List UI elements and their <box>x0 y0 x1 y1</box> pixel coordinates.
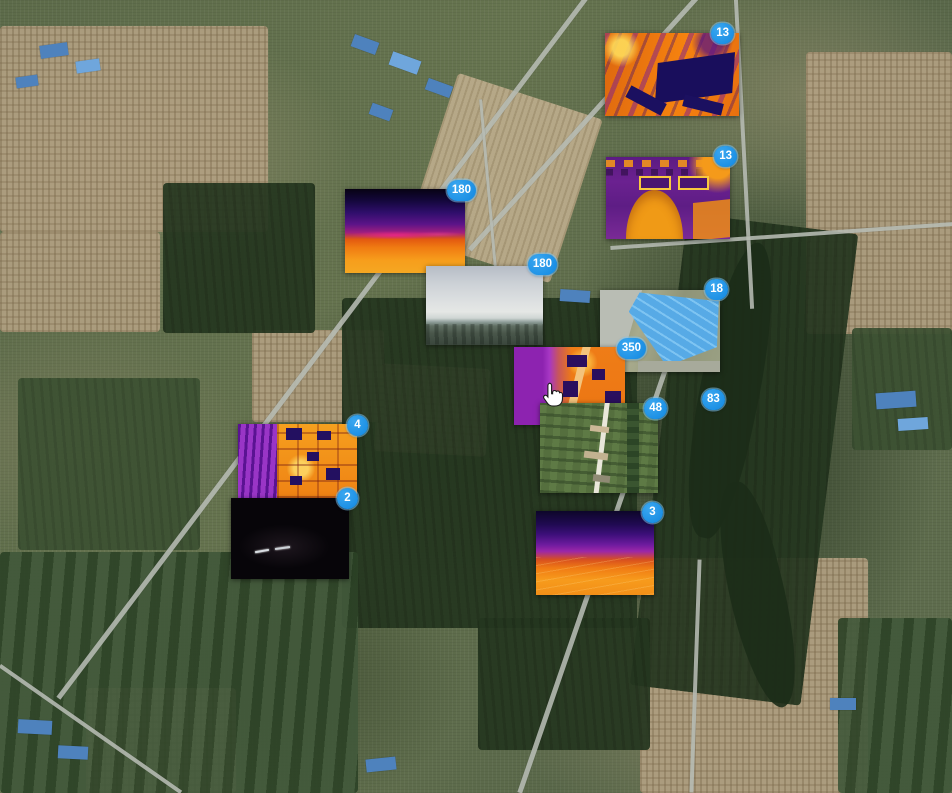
media-cluster-marker[interactable]: 13 <box>606 157 730 239</box>
thumbnail-thermal-warehouses[interactable] <box>605 33 739 116</box>
map-blue-roof <box>875 391 916 410</box>
map-blue-roof <box>560 289 591 303</box>
map-blue-roof <box>365 756 396 772</box>
map-village-patch <box>0 232 160 332</box>
media-cluster-marker[interactable]: 4 <box>238 424 357 498</box>
map-blue-roof <box>58 745 89 760</box>
cluster-count-badge[interactable]: 83 <box>702 389 725 410</box>
cluster-count-badge[interactable]: 350 <box>617 338 646 359</box>
map-field-rows-patch <box>0 552 358 793</box>
satellite-map[interactable]: 13 13 18 180 180 350 48 83 4 2 3 <box>0 0 952 793</box>
map-blue-roof <box>898 417 929 431</box>
cluster-count-badge[interactable]: 2 <box>337 488 358 509</box>
cluster-count-badge[interactable]: 3 <box>642 502 663 523</box>
cluster-count-badge[interactable]: 180 <box>528 254 557 275</box>
map-blue-roof <box>830 698 856 710</box>
media-cluster-marker[interactable]: 180 <box>345 189 465 273</box>
map-blue-roof <box>351 34 380 55</box>
media-cluster-marker[interactable]: 180 <box>426 266 543 345</box>
media-cluster-marker[interactable]: 3 <box>536 511 654 595</box>
thumbnail-thermal-horizon-purple[interactable] <box>536 511 654 595</box>
cluster-count-badge[interactable]: 18 <box>705 279 728 300</box>
map-blue-roof <box>369 103 394 122</box>
media-cluster-marker[interactable]: 2 <box>231 498 349 579</box>
cluster-count-badge[interactable]: 180 <box>447 180 476 201</box>
thumbnail-thermal-gate-building[interactable] <box>606 157 730 239</box>
cluster-count-badge[interactable]: 13 <box>711 23 734 44</box>
media-cluster-marker[interactable]: 48 <box>540 403 658 493</box>
hand-pointer-cursor-icon <box>541 381 565 411</box>
thumbnail-hazy-horizon-photo[interactable] <box>426 266 543 345</box>
map-blue-roof <box>18 719 53 735</box>
map-blue-roof <box>389 51 422 74</box>
thumbnail-farm-fields[interactable] <box>540 403 658 493</box>
thumbnail-night-photo[interactable] <box>231 498 349 579</box>
map-blue-roof <box>425 78 454 98</box>
thumbnail-thermal-solar-site[interactable] <box>238 424 357 498</box>
media-cluster-marker[interactable]: 13 <box>605 33 739 116</box>
map-field-patch <box>163 183 315 333</box>
cluster-count-badge[interactable]: 4 <box>347 415 368 436</box>
map-field-patch <box>18 378 200 550</box>
map-field-patch <box>852 328 952 450</box>
cluster-count-badge[interactable]: 48 <box>644 398 667 419</box>
map-field-patch <box>478 618 650 750</box>
thumbnail-thermal-horizon[interactable] <box>345 189 465 273</box>
cluster-count-badge[interactable]: 13 <box>714 146 737 167</box>
